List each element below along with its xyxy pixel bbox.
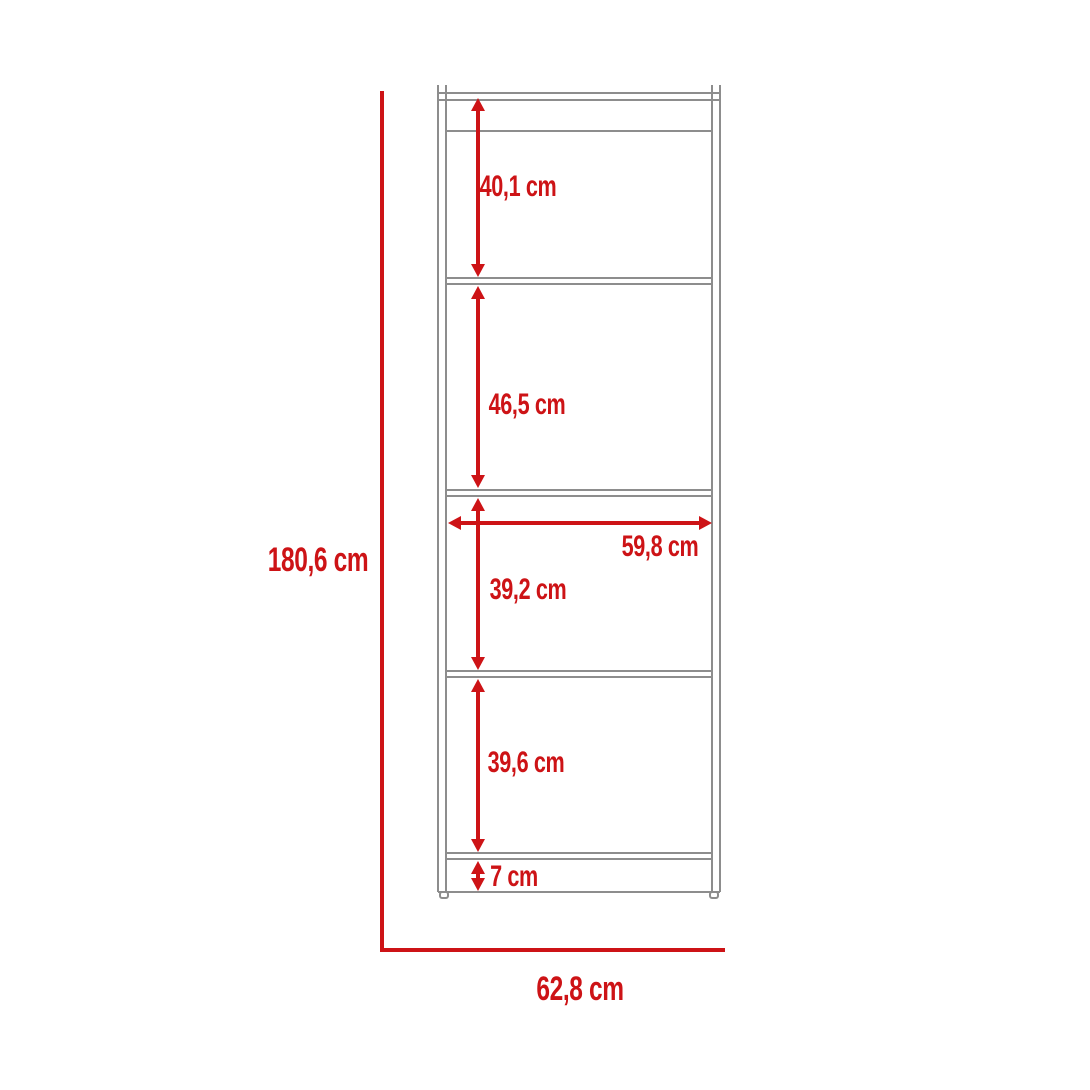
dimension-annotations [382,91,725,950]
arrow-section4-height [471,679,485,852]
arrow-section2-height [471,286,485,488]
label-total-width: 62,8 cm [536,972,623,1006]
overall-dimension-bracket [382,91,725,950]
label-base-height: 7 cm [490,862,538,892]
label-section1-height: 40,1 cm [480,172,557,202]
label-section4-height: 39,6 cm [488,748,565,778]
left-foot [440,892,448,898]
label-section2-height: 46,5 cm [489,390,566,420]
right-foot [710,892,718,898]
arrow-base-height [471,861,485,891]
furniture-dimension-diagram: 40,1 cm 46,5 cm 59,8 cm 39,2 cm 39,6 cm … [0,0,1090,1090]
label-section3-height: 39,2 cm [490,575,567,605]
label-total-height: 180,6 cm [268,543,369,577]
cabinet-line-art [0,0,1090,1090]
cabinet-structure [438,85,720,898]
arrow-inner-width [448,516,712,530]
label-inner-width: 59,8 cm [622,532,699,562]
